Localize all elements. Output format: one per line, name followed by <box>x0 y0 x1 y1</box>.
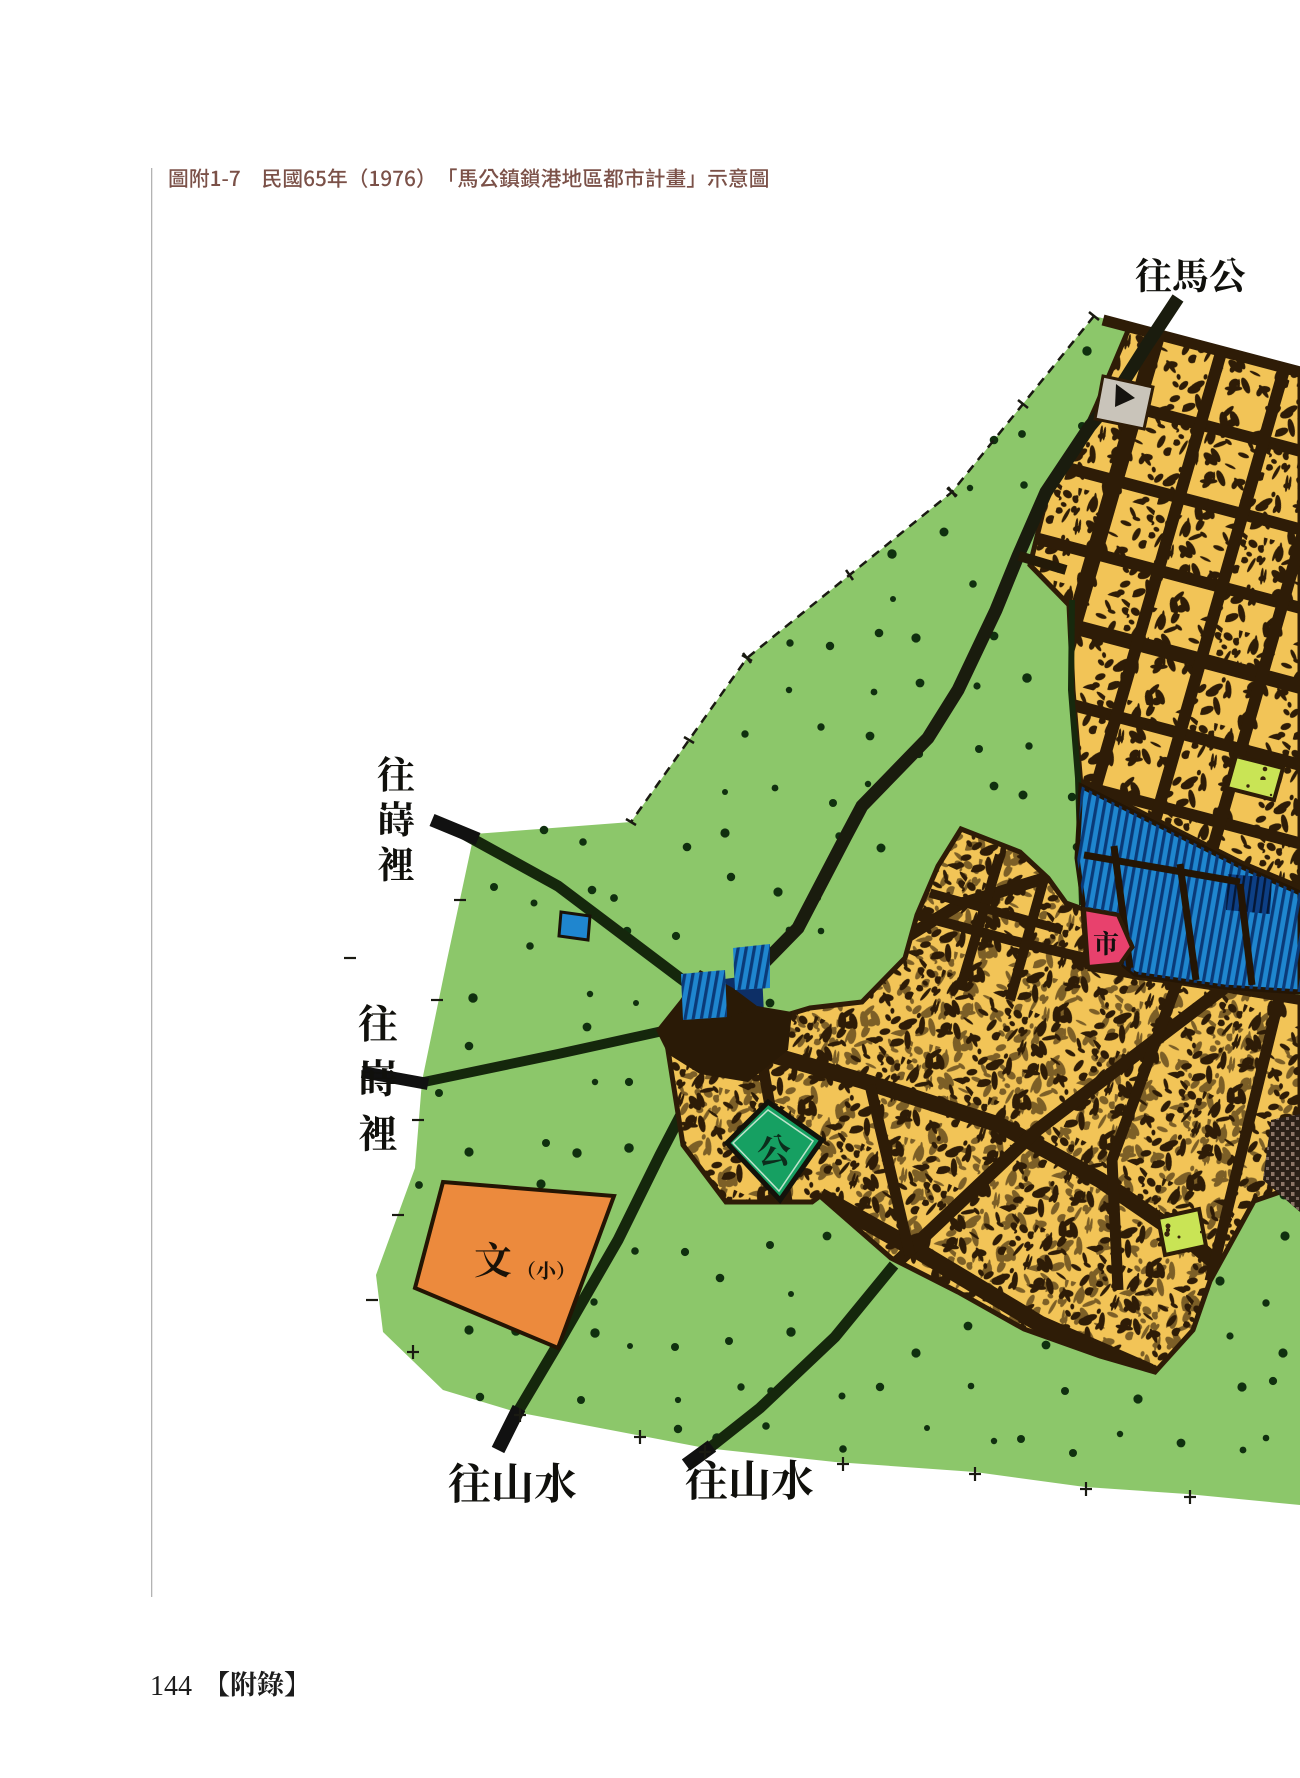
svg-text:144: 144 <box>150 1671 192 1702</box>
